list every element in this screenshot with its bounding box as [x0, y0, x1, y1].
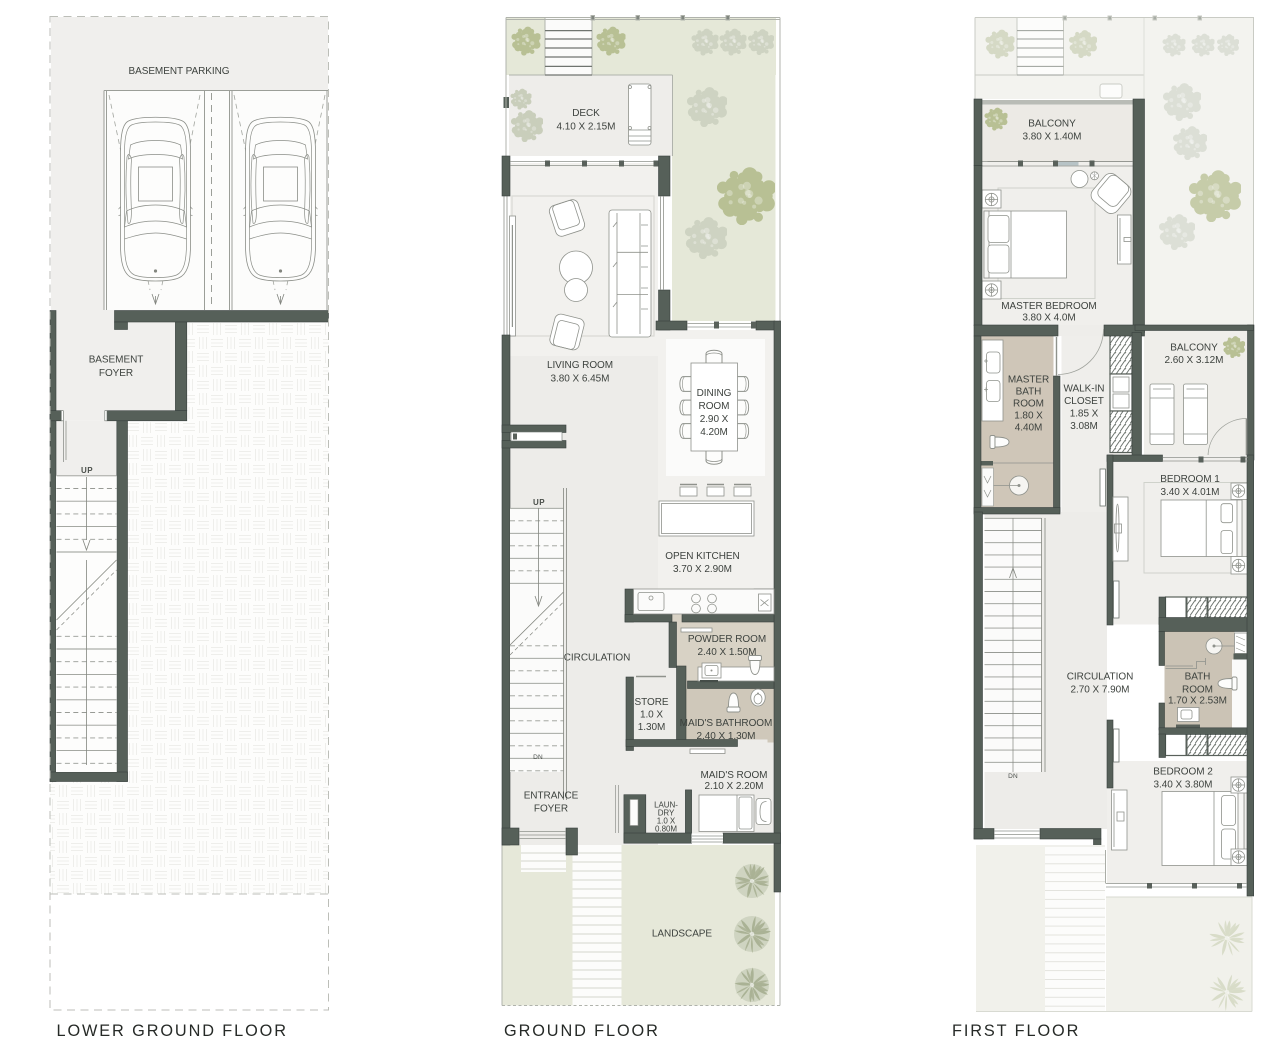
- svg-text:UP: UP: [81, 466, 93, 475]
- svg-text:1.85 X: 1.85 X: [1070, 409, 1099, 420]
- svg-text:MASTER BEDROOM: MASTER BEDROOM: [1001, 301, 1096, 312]
- svg-text:DN: DN: [1008, 773, 1018, 780]
- svg-text:3.80 X 6.45M: 3.80 X 6.45M: [551, 374, 610, 385]
- svg-text:FIRST FLOOR: FIRST FLOOR: [952, 1022, 1080, 1040]
- svg-text:3.70 X 2.90M: 3.70 X 2.90M: [673, 564, 732, 575]
- svg-text:ROOM: ROOM: [1013, 399, 1044, 410]
- svg-text:BATH: BATH: [1016, 387, 1042, 398]
- svg-text:ENTRANCE: ENTRANCE: [524, 791, 579, 802]
- svg-text:3.40 X 3.80M: 3.40 X 3.80M: [1154, 780, 1213, 791]
- svg-text:DINING: DINING: [697, 388, 732, 399]
- svg-text:1.70 X 2.53M: 1.70 X 2.53M: [1168, 696, 1227, 707]
- svg-text:LIVING ROOM: LIVING ROOM: [547, 360, 613, 371]
- svg-text:4.40M: 4.40M: [1015, 423, 1043, 434]
- svg-text:2.40 X 1.30M: 2.40 X 1.30M: [697, 731, 756, 742]
- svg-text:DN: DN: [533, 754, 543, 761]
- svg-text:UP: UP: [533, 498, 545, 507]
- svg-text:CIRCULATION: CIRCULATION: [1067, 672, 1134, 683]
- svg-text:BEDROOM 2: BEDROOM 2: [1153, 767, 1213, 778]
- svg-text:MASTER: MASTER: [1008, 375, 1049, 386]
- svg-text:OPEN KITCHEN: OPEN KITCHEN: [665, 551, 739, 562]
- svg-text:BALCONY: BALCONY: [1170, 343, 1218, 354]
- svg-text:CIRCULATION: CIRCULATION: [564, 653, 631, 664]
- svg-text:CLOSET: CLOSET: [1064, 396, 1104, 407]
- svg-text:1.80 X: 1.80 X: [1014, 411, 1043, 422]
- svg-text:MAID'S BATHROOM: MAID'S BATHROOM: [680, 718, 773, 729]
- svg-text:POWDER ROOM: POWDER ROOM: [688, 634, 766, 645]
- svg-text:3.80 X 1.40M: 3.80 X 1.40M: [1023, 132, 1082, 143]
- svg-text:2.40 X 1.50M: 2.40 X 1.50M: [698, 647, 757, 658]
- svg-text:FOYER: FOYER: [534, 804, 568, 815]
- svg-text:2.10 X 2.20M: 2.10 X 2.20M: [705, 781, 764, 792]
- svg-text:LOWER GROUND FLOOR: LOWER GROUND FLOOR: [57, 1022, 288, 1040]
- svg-text:2.60 X 3.12M: 2.60 X 3.12M: [1165, 355, 1224, 366]
- svg-text:ROOM: ROOM: [1182, 685, 1213, 696]
- svg-text:3.08M: 3.08M: [1070, 421, 1098, 432]
- svg-text:LANDSCAPE: LANDSCAPE: [652, 929, 713, 940]
- svg-text:ROOM: ROOM: [699, 401, 730, 412]
- svg-text:MAID'S ROOM: MAID'S ROOM: [701, 770, 768, 781]
- svg-text:BASEMENT PARKING: BASEMENT PARKING: [128, 66, 229, 77]
- svg-text:0.80M: 0.80M: [655, 825, 677, 834]
- svg-text:2.90 X: 2.90 X: [700, 414, 729, 425]
- svg-text:4.10 X 2.15M: 4.10 X 2.15M: [557, 122, 616, 133]
- svg-text:4.20M: 4.20M: [700, 427, 728, 438]
- svg-text:STORE: STORE: [634, 697, 668, 708]
- svg-text:BEDROOM 1: BEDROOM 1: [1160, 474, 1220, 485]
- svg-text:BATH: BATH: [1185, 672, 1211, 683]
- svg-text:1.30M: 1.30M: [638, 722, 666, 733]
- svg-text:1.0 X: 1.0 X: [640, 710, 663, 721]
- svg-text:BALCONY: BALCONY: [1028, 119, 1076, 130]
- svg-text:3.40 X 4.01M: 3.40 X 4.01M: [1161, 487, 1220, 498]
- svg-text:BASEMENT: BASEMENT: [89, 355, 144, 366]
- svg-text:GROUND FLOOR: GROUND FLOOR: [504, 1022, 660, 1040]
- svg-text:WALK-IN: WALK-IN: [1064, 384, 1105, 395]
- svg-text:DECK: DECK: [572, 108, 600, 119]
- svg-text:3.80 X 4.0M: 3.80 X 4.0M: [1022, 313, 1075, 324]
- svg-text:2.70 X 7.90M: 2.70 X 7.90M: [1071, 685, 1130, 696]
- svg-text:FOYER: FOYER: [99, 368, 133, 379]
